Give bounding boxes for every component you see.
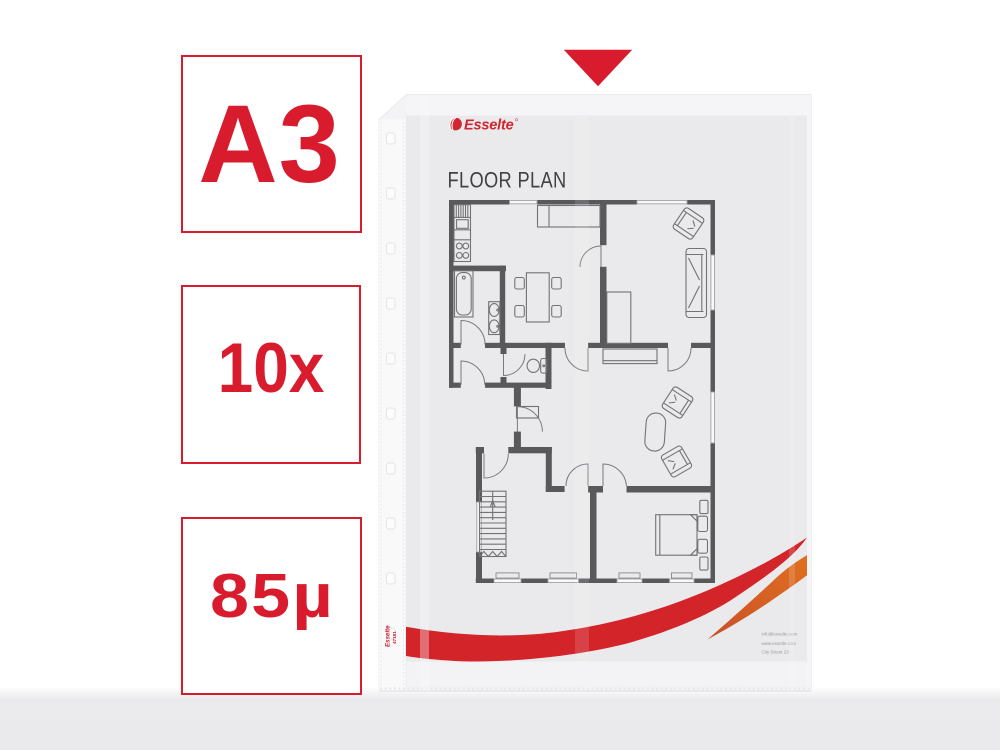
svg-text:FLOOR PLAN: FLOOR PLAN bbox=[448, 169, 567, 193]
svg-text:City Street 23: City Street 23 bbox=[762, 650, 790, 655]
svg-text:47181: 47181 bbox=[392, 631, 397, 644]
svg-text:Esselte: Esselte bbox=[464, 118, 514, 134]
svg-text:Esselte: Esselte bbox=[385, 625, 392, 647]
